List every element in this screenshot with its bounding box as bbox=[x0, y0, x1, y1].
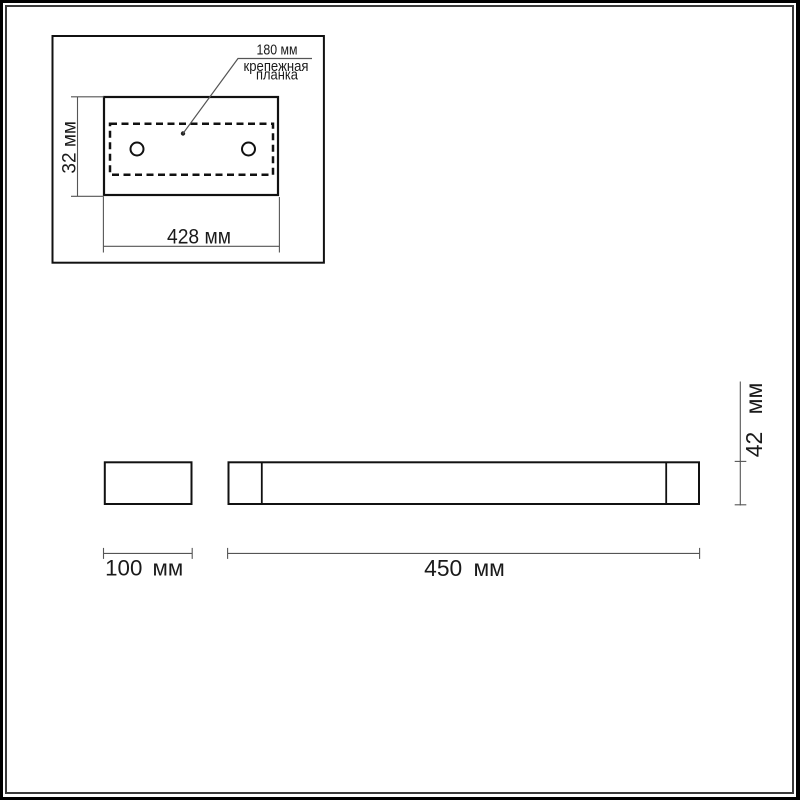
svg-text:180 мм: 180 мм bbox=[257, 43, 298, 59]
svg-text:450 мм: 450 мм bbox=[424, 555, 505, 581]
svg-text:планка: планка bbox=[256, 68, 299, 84]
svg-text:100 мм: 100 мм bbox=[105, 555, 183, 580]
svg-text:42 мм: 42 мм bbox=[741, 383, 767, 458]
svg-text:428 мм: 428 мм bbox=[167, 225, 231, 249]
svg-text:32 мм: 32 мм bbox=[60, 121, 81, 174]
